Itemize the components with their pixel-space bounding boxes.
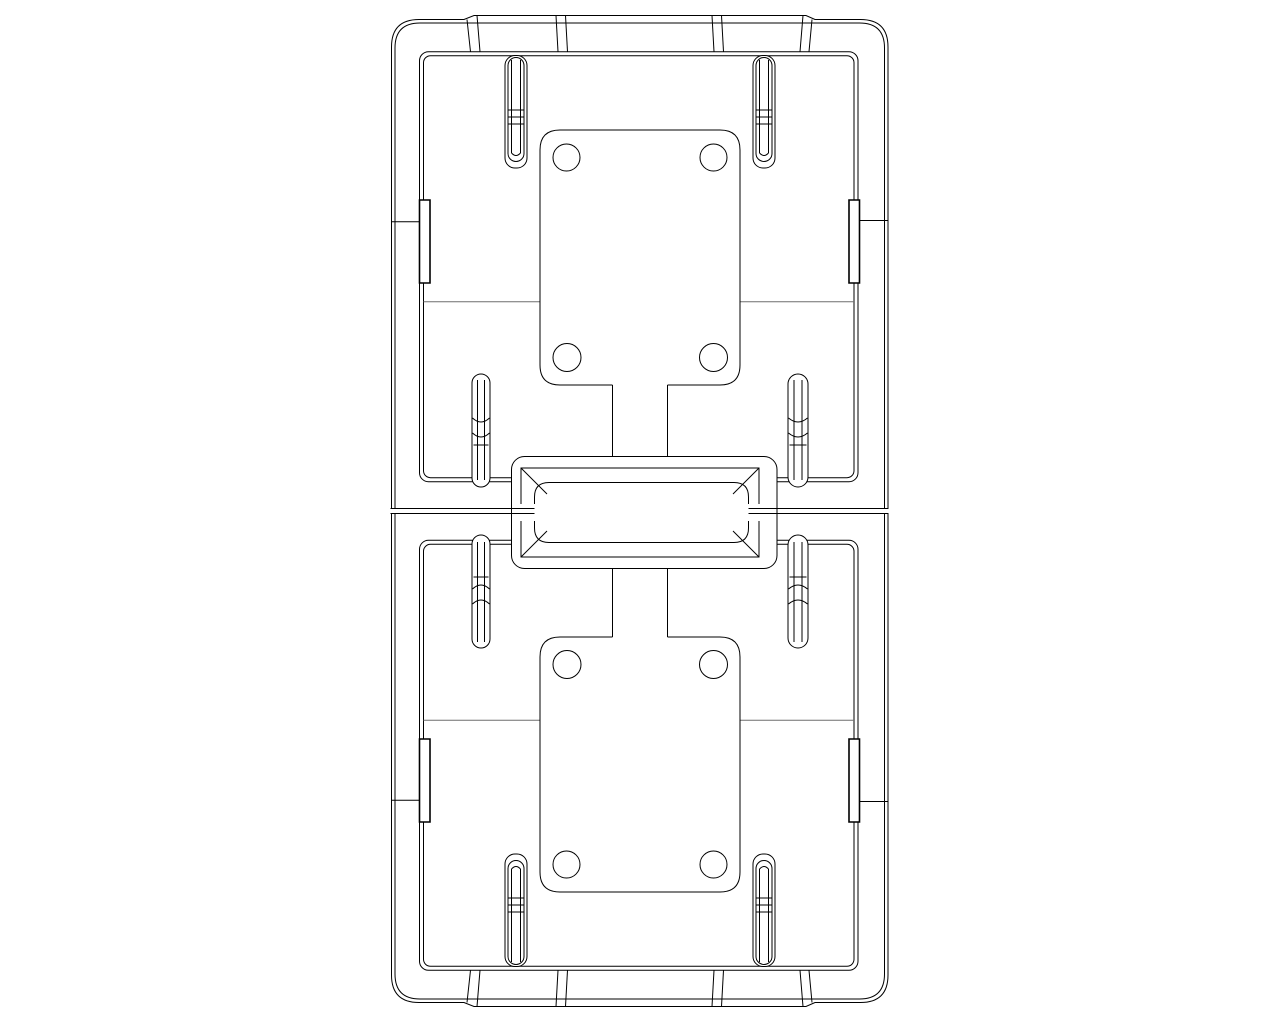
- cad-viewport: [0, 0, 1280, 1024]
- mid-slot-left: [472, 374, 490, 487]
- cad-drawing: [0, 0, 1280, 1024]
- mid-slot-outline: [472, 374, 490, 487]
- corner-slot-left: [505, 56, 527, 169]
- side-notch-right: [849, 200, 860, 283]
- mounting-plate: [540, 130, 740, 385]
- mid-slot-outline: [788, 374, 808, 487]
- mid-slot-right: [788, 374, 808, 487]
- side-notch-left: [420, 200, 431, 283]
- latch-outer-outline: [512, 457, 778, 569]
- corner-slot-right: [753, 56, 775, 169]
